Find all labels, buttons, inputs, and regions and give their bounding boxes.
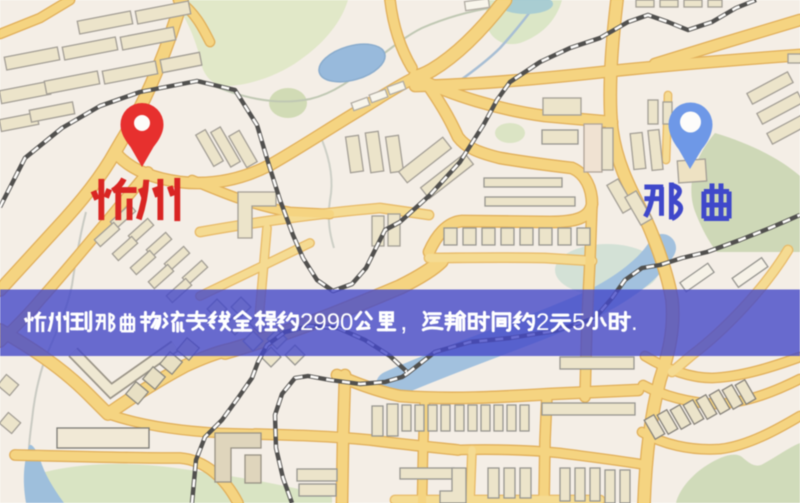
svg-text:5: 5 xyxy=(572,309,585,336)
svg-text:2: 2 xyxy=(536,309,549,336)
svg-text:.: . xyxy=(631,309,638,336)
svg-text:,: , xyxy=(400,306,408,336)
svg-text:2990: 2990 xyxy=(300,309,353,336)
